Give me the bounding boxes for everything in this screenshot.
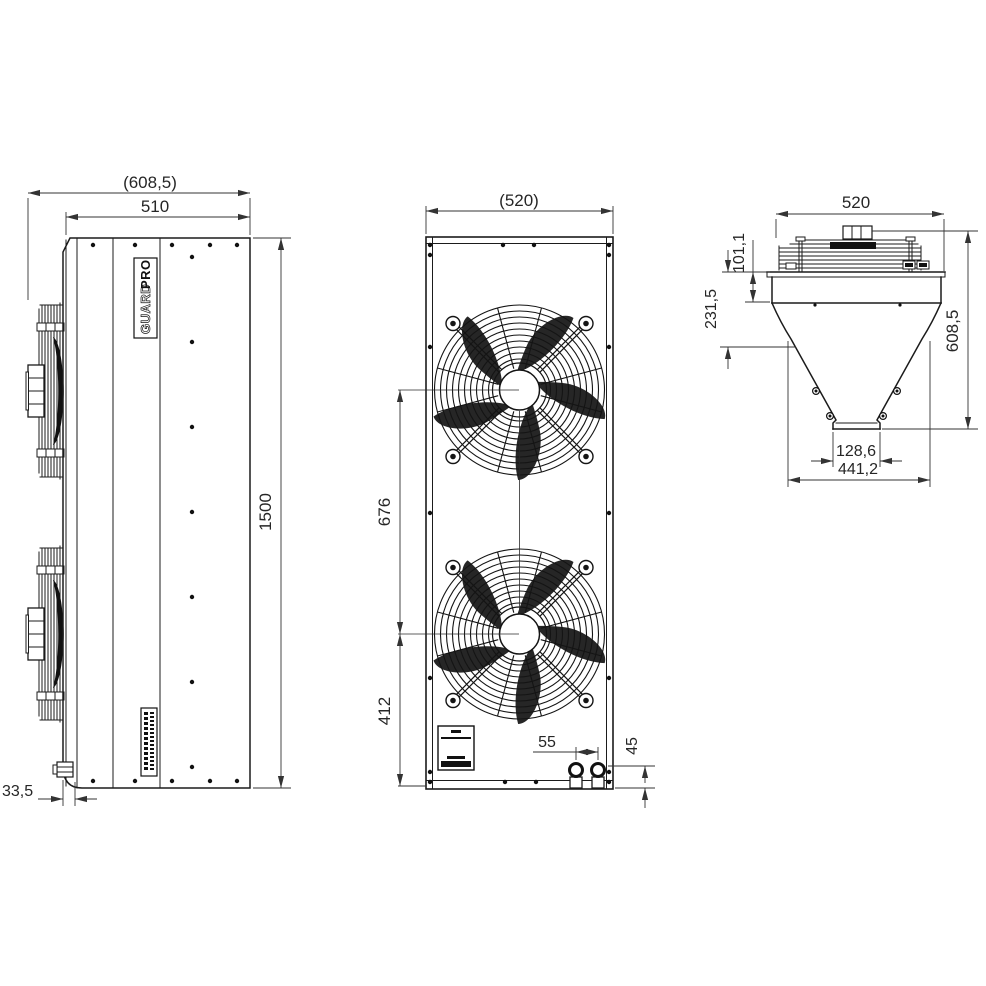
svg-text:45: 45 [624,737,641,755]
technical-drawing-page: GUARD PRO (608,5) 510 [0,0,986,986]
svg-text:(608,5): (608,5) [123,173,177,192]
svg-text:520: 520 [842,193,870,212]
dim-side-body-depth: 510 [66,197,250,235]
svg-text:101,1: 101,1 [731,233,748,273]
svg-text:33,5: 33,5 [2,783,33,800]
svg-text:55: 55 [538,734,556,751]
top-view: 520 608,5 101,1 231,5 [703,193,978,487]
front-view: (520) 676 412 55 [375,191,655,808]
svg-text:231,5: 231,5 [703,289,720,329]
funnel-screws [813,388,901,420]
svg-text:510: 510 [141,197,169,216]
svg-text:412: 412 [375,697,394,725]
svg-text:441,2: 441,2 [838,461,878,478]
nameplate [438,726,474,770]
dim-side-drain-offset: 33,5 [2,780,97,806]
side-fan-lower [26,545,64,723]
terminal-box [843,226,872,239]
top-body-outline [767,272,945,429]
dim-side-height: 1500 [253,238,291,788]
brand-logo-guard: GUARD [138,284,153,334]
side-view: GUARD PRO (608,5) 510 [2,173,291,806]
brand-logo-pro: PRO [138,259,153,289]
warning-label [141,708,157,776]
svg-text:1500: 1500 [256,493,275,531]
dim-front-width: (520) [426,191,613,234]
drain-fitting [53,762,73,777]
svg-text:676: 676 [375,498,394,526]
svg-text:(520): (520) [499,191,539,210]
top-fan-deck [779,237,929,271]
dim-top-deck-height: 101,1 [722,233,770,302]
brand-logo-plate: GUARD PRO [134,258,157,338]
side-fan-upper [26,302,64,480]
dim-front-pipe-offset: 45 [608,737,655,808]
svg-text:128,6: 128,6 [836,443,876,460]
svg-text:608,5: 608,5 [943,310,962,353]
dim-front-fan-to-bottom: 412 [375,634,426,786]
technical-drawing: GUARD PRO (608,5) 510 [0,0,986,986]
